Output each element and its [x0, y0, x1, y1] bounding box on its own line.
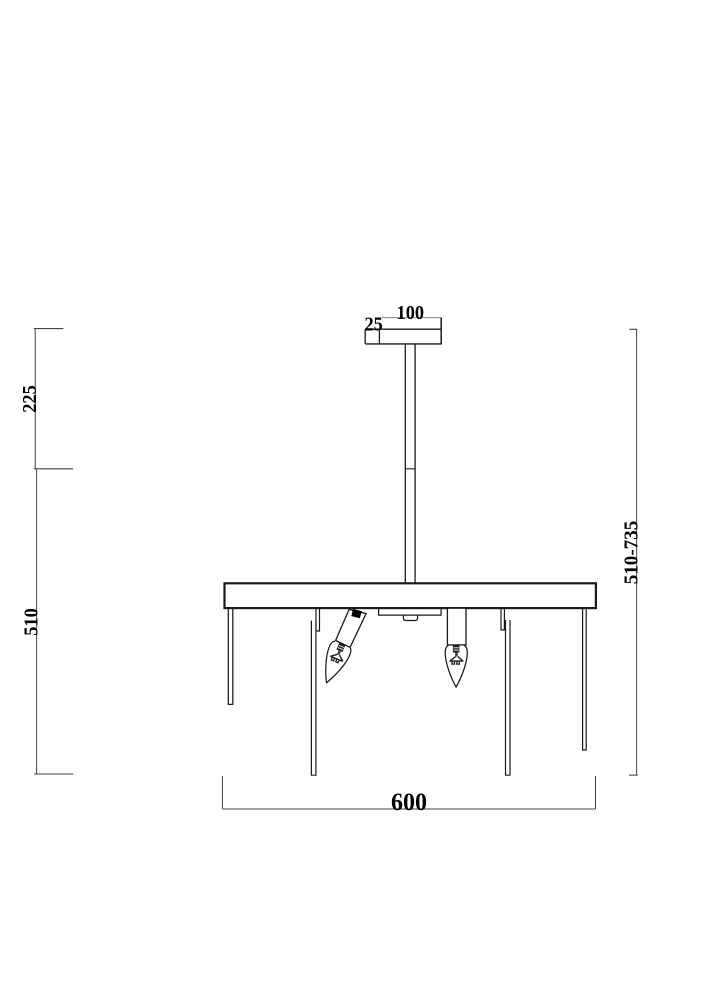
svg-text:510-735: 510-735 — [620, 521, 642, 585]
svg-text:25: 25 — [364, 313, 382, 335]
svg-text:510: 510 — [20, 608, 42, 636]
svg-text:225: 225 — [19, 385, 41, 413]
svg-text:600: 600 — [391, 789, 427, 816]
svg-text:100: 100 — [397, 302, 425, 324]
